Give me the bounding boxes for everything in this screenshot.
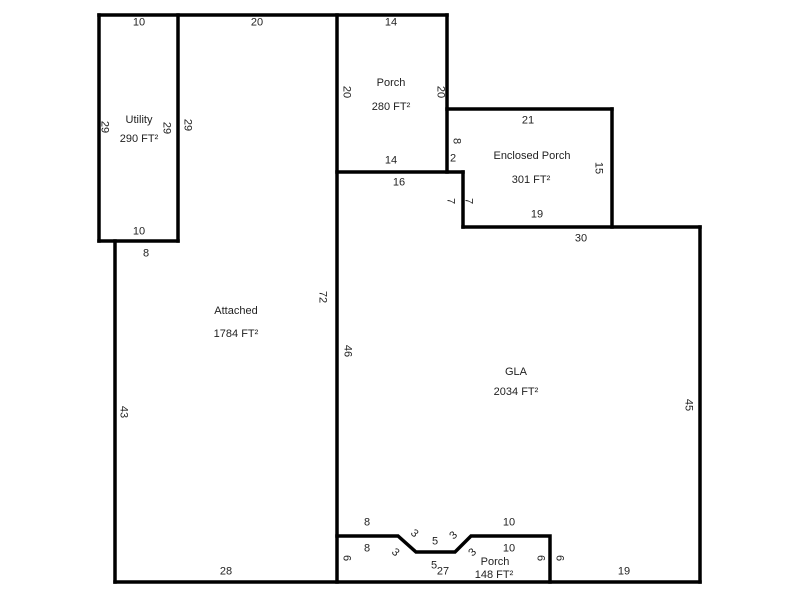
dimension-label: 6	[535, 555, 546, 561]
dimension-label: 8	[143, 249, 149, 260]
room-area-label: 1784 FT²	[214, 328, 259, 340]
dimension-label: 19	[618, 567, 630, 578]
dimension-label: 7	[463, 198, 474, 204]
dimension-label: 5	[432, 537, 438, 548]
dimension-label: 30	[575, 234, 587, 245]
room-area-label: 290 FT²	[120, 133, 159, 145]
dimension-label: 20	[341, 86, 352, 98]
room-name-label: Porch	[377, 77, 406, 89]
dimension-label: 10	[133, 18, 145, 29]
room-name-label: GLA	[505, 366, 527, 378]
dimension-label: 2	[450, 154, 456, 165]
dimension-label: 29	[182, 119, 193, 131]
room-name-label: Utility	[126, 114, 153, 126]
dimension-label: 10	[503, 544, 515, 555]
floorplan-walls	[0, 0, 800, 600]
room-name-label: Porch	[481, 556, 510, 568]
dimension-label: 8	[451, 138, 462, 144]
dimension-label: 45	[683, 399, 694, 411]
room-name-label: Attached	[214, 305, 257, 317]
dimension-label: 29	[99, 121, 110, 133]
dimension-label: 72	[317, 291, 328, 303]
dimension-label: 6	[554, 555, 565, 561]
dimension-label: 43	[118, 406, 129, 418]
dimension-label: 20	[435, 86, 446, 98]
room-area-label: 301 FT²	[512, 174, 551, 186]
room-name-label: Enclosed Porch	[493, 150, 570, 162]
room-area-label: 2034 FT²	[494, 386, 539, 398]
dimension-label: 10	[503, 518, 515, 529]
dimension-label: 8	[364, 518, 370, 529]
dimension-label: 27	[437, 567, 449, 578]
dimension-label: 14	[385, 156, 397, 167]
floorplan-canvas: Utility290 FT²Porch280 FT²Enclosed Porch…	[0, 0, 800, 600]
dimension-label: 8	[364, 544, 370, 555]
dimension-label: 10	[133, 227, 145, 238]
dimension-label: 28	[220, 567, 232, 578]
dimension-label: 29	[161, 122, 172, 134]
room-area-label: 280 FT²	[372, 101, 411, 113]
dimension-label: 16	[393, 178, 405, 189]
dimension-label: 15	[593, 162, 604, 174]
dimension-label: 19	[531, 210, 543, 221]
dimension-label: 21	[522, 116, 534, 127]
dimension-label: 14	[385, 18, 397, 29]
dimension-label: 7	[445, 198, 456, 204]
dimension-label: 20	[251, 18, 263, 29]
room-area-label: 148 FT²	[475, 569, 514, 581]
dimension-label: 6	[341, 555, 352, 561]
dimension-label: 46	[342, 345, 353, 357]
